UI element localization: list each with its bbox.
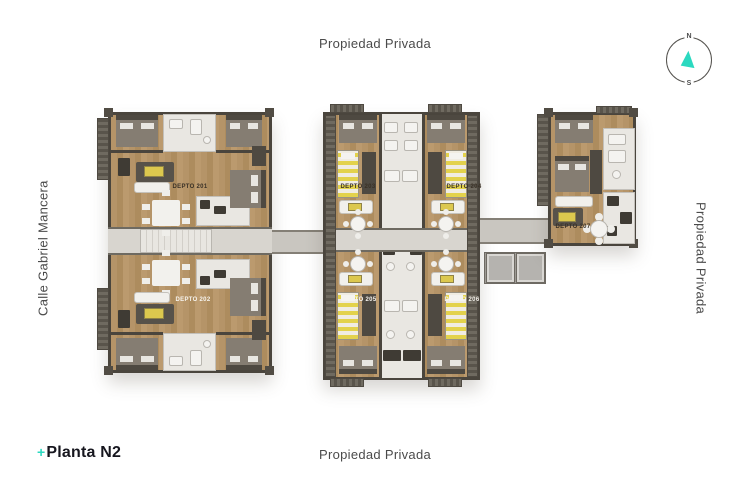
desk-accent: [348, 275, 362, 283]
toilet: [203, 340, 211, 348]
bed: [230, 170, 266, 208]
balcony: [97, 288, 109, 350]
kitchen-island: [214, 270, 226, 278]
wardrobe: [252, 146, 266, 166]
dining-table: [152, 260, 180, 286]
shower: [190, 119, 202, 135]
coffee-table: [144, 166, 164, 177]
sofa: [555, 196, 593, 207]
wall-pier: [544, 108, 553, 117]
wall-pier: [629, 108, 638, 117]
shower: [608, 150, 626, 163]
bathroom-fixture: [384, 300, 400, 312]
round-table: [350, 216, 366, 232]
washer: [406, 262, 415, 271]
bed: [555, 156, 589, 192]
unit-label-depto-204: DEPTO 204: [438, 184, 490, 190]
bathtub: [169, 356, 183, 366]
bed: [226, 338, 262, 370]
wall-pier: [104, 366, 113, 375]
unit-label-depto-206: DEPTO 206: [436, 297, 488, 303]
sofa: [134, 292, 170, 303]
bed: [230, 278, 266, 316]
wall-pier: [265, 366, 274, 375]
bed-yellow: [337, 150, 359, 198]
round-table: [438, 256, 454, 272]
toilet: [612, 170, 621, 179]
bed: [339, 115, 377, 143]
bed: [226, 115, 262, 147]
washer: [406, 330, 415, 339]
balcony: [537, 114, 549, 206]
unit-label-depto-203: DEPTO 203: [332, 184, 384, 190]
bed: [427, 346, 465, 374]
round-table: [438, 216, 454, 232]
partition-wall: [111, 150, 163, 153]
bathroom-fixture: [384, 140, 398, 151]
elevator: [487, 254, 514, 282]
elevator: [517, 254, 544, 282]
unit-label-depto-207: DEPTO 207: [547, 224, 599, 230]
wardrobe: [252, 320, 266, 340]
wall-pier: [544, 239, 553, 248]
balcony-railing: [330, 104, 364, 113]
bathroom-fixture: [384, 122, 398, 133]
bed: [555, 115, 593, 143]
bathroom-fixture: [402, 300, 418, 312]
shower: [190, 350, 202, 366]
unit-label-depto-202: DEPTO 202: [167, 297, 219, 303]
coffee-table: [558, 212, 576, 222]
tv-unit: [118, 310, 130, 328]
bed: [427, 115, 465, 143]
toilet: [203, 136, 211, 144]
balcony: [97, 118, 109, 180]
bathroom-fixture: [404, 122, 418, 133]
bed: [339, 346, 377, 374]
stove: [200, 276, 210, 285]
kitchen-unit: [383, 350, 401, 361]
balcony-railing: [428, 104, 462, 113]
partition-wall: [111, 332, 163, 335]
desk-accent: [440, 275, 454, 283]
corridor-connector: [272, 230, 323, 254]
bathroom-fixture: [384, 170, 400, 182]
washer: [386, 330, 395, 339]
wardrobe: [590, 150, 602, 194]
kitchen-island: [214, 206, 226, 214]
bed-yellow: [445, 150, 467, 198]
stove: [200, 200, 210, 209]
tv-unit: [118, 158, 130, 176]
balcony-railing: [330, 378, 364, 387]
kitchen-unit: [620, 212, 632, 224]
bed: [116, 115, 158, 147]
corridor-connector: [480, 218, 548, 244]
wall-pier: [104, 108, 113, 117]
washer: [386, 262, 395, 271]
stairs: [140, 229, 212, 253]
fridge: [607, 226, 617, 236]
desk-accent: [440, 203, 454, 211]
wall-pier: [265, 108, 274, 117]
bathtub: [608, 134, 626, 145]
floor-plan: DEPTO 201 DEPTO 202 DEPTO 203 DEPTO 204 …: [0, 0, 750, 500]
kitchen-unit: [403, 350, 421, 361]
balcony-railing: [428, 378, 462, 387]
stove: [607, 196, 619, 206]
bathroom-fixture: [402, 170, 418, 182]
unit-label-depto-201: DEPTO 201: [164, 184, 216, 190]
balcony: [467, 115, 478, 377]
desk-accent: [348, 203, 362, 211]
bathtub: [169, 119, 183, 129]
round-table: [350, 256, 366, 272]
bathroom-fixture: [404, 140, 418, 151]
unit-label-depto-205: DEPTO 205: [333, 297, 385, 303]
coffee-table: [144, 308, 164, 319]
balcony-railing: [596, 106, 632, 114]
bed: [116, 338, 158, 370]
dining-table: [152, 200, 180, 226]
balcony: [325, 115, 336, 377]
